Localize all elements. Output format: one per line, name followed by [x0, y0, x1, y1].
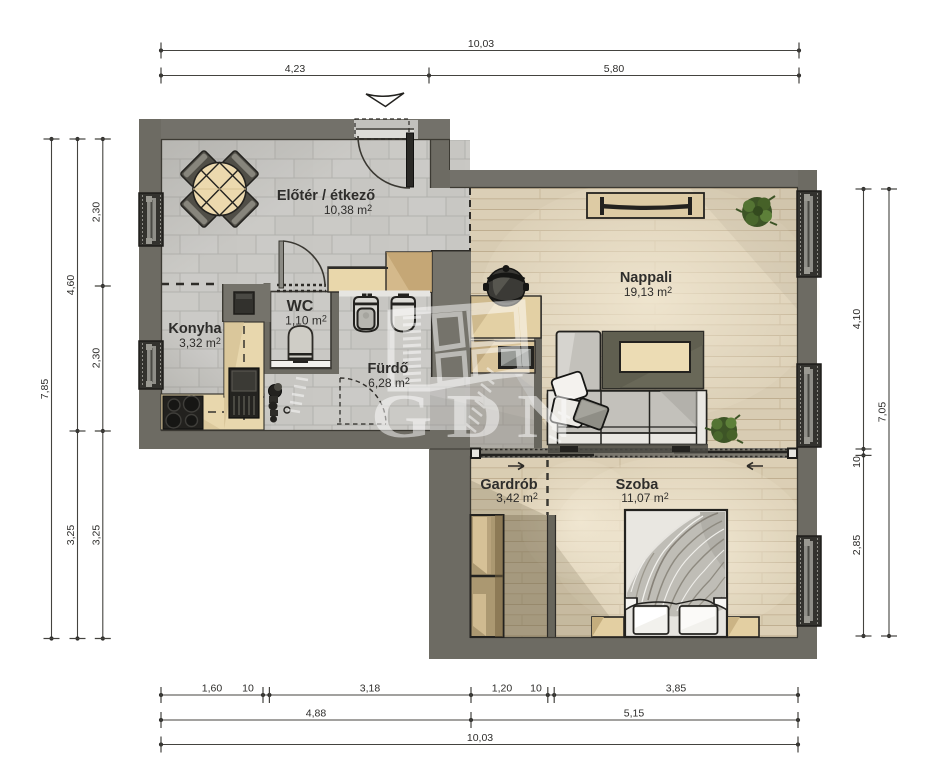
- svg-text:Előtér / étkező: Előtér / étkező: [277, 188, 375, 204]
- svg-text:10: 10: [530, 683, 542, 695]
- svg-text:3,85: 3,85: [666, 683, 687, 695]
- svg-text:3,42 m2: 3,42 m2: [496, 491, 538, 505]
- svg-text:Konyha: Konyha: [168, 321, 222, 337]
- svg-text:10,03: 10,03: [468, 38, 494, 50]
- svg-text:4,88: 4,88: [306, 708, 327, 720]
- svg-text:3,32 m2: 3,32 m2: [179, 336, 221, 350]
- svg-text:10: 10: [242, 683, 254, 695]
- svg-text:6,28 m2: 6,28 m2: [368, 376, 410, 390]
- svg-text:2,30: 2,30: [90, 202, 102, 223]
- svg-text:11,07 m2: 11,07 m2: [621, 491, 668, 505]
- svg-text:5,15: 5,15: [624, 708, 645, 720]
- svg-text:3,18: 3,18: [360, 683, 381, 695]
- svg-text:Nappali: Nappali: [620, 270, 672, 286]
- svg-text:Fürdő: Fürdő: [367, 361, 408, 377]
- svg-text:10: 10: [851, 456, 863, 468]
- svg-text:3,25: 3,25: [65, 525, 77, 546]
- svg-text:3,25: 3,25: [90, 525, 102, 546]
- svg-text:10,38 m2: 10,38 m2: [324, 203, 372, 217]
- svg-text:10,03: 10,03: [467, 732, 493, 744]
- svg-text:4,10: 4,10: [851, 309, 863, 330]
- svg-text:GDN: GDN: [371, 383, 588, 451]
- svg-text:4,60: 4,60: [65, 275, 77, 296]
- svg-text:5,80: 5,80: [604, 63, 625, 75]
- svg-text:2,30: 2,30: [90, 348, 102, 369]
- svg-text:1,60: 1,60: [202, 683, 223, 695]
- svg-text:WC: WC: [287, 298, 314, 315]
- svg-text:7,85: 7,85: [39, 379, 51, 400]
- svg-text:4,23: 4,23: [285, 63, 306, 75]
- svg-text:1,10 m2: 1,10 m2: [285, 314, 327, 328]
- svg-text:19,13 m2: 19,13 m2: [624, 285, 672, 299]
- svg-text:7,05: 7,05: [877, 402, 889, 423]
- svg-text:1,20: 1,20: [492, 683, 513, 695]
- svg-text:2,85: 2,85: [851, 535, 863, 556]
